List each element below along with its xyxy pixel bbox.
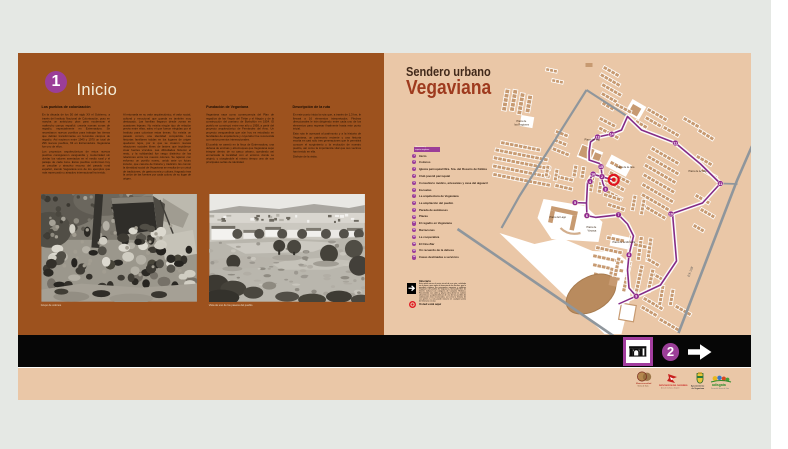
svg-text:DIPUTACIÓN DE CÁCERES: DIPUTACIÓN DE CÁCERES	[659, 384, 688, 387]
svg-text:de Vegaviana: de Vegaviana	[692, 388, 706, 390]
svg-text:Desarrollo Sierra de Gata: Desarrollo Sierra de Gata	[711, 387, 729, 390]
svg-text:16: 16	[591, 172, 595, 176]
svg-text:12: 12	[673, 141, 677, 145]
svg-text:15: 15	[599, 165, 603, 169]
svg-text:las Regiones: las Regiones	[514, 124, 529, 127]
svg-text:Área de Cultura y Deporte: Área de Cultura y Deporte	[661, 387, 680, 390]
svg-text:Plaza del Lago: Plaza del Lago	[549, 216, 566, 219]
svg-text:14: 14	[609, 133, 613, 137]
svg-text:Plaza del Tejo: Plaza del Tejo	[584, 139, 600, 142]
svg-text:Plaza de la Jara: Plaza de la Jara	[616, 166, 635, 169]
svg-text:10: 10	[668, 212, 672, 216]
svg-text:7: 7	[617, 213, 619, 217]
svg-text:adisgata: adisgata	[712, 383, 726, 387]
svg-text:Plaza de la Montaña: Plaza de la Montaña	[612, 241, 635, 244]
svg-text:4: 4	[589, 180, 591, 184]
svg-text:11: 11	[718, 182, 722, 186]
svg-text:5: 5	[574, 201, 576, 205]
svg-text:9: 9	[635, 295, 637, 299]
svg-text:Vizcaya: Vizcaya	[587, 230, 596, 233]
svg-text:3: 3	[604, 188, 606, 192]
svg-text:6: 6	[585, 214, 587, 218]
svg-text:Plaza de la Cilla: Plaza de la Cilla	[688, 170, 707, 173]
svg-text:Sierra de Gata: Sierra de Gata	[638, 385, 649, 388]
svg-text:2: 2	[601, 175, 603, 179]
svg-text:8: 8	[628, 253, 630, 257]
